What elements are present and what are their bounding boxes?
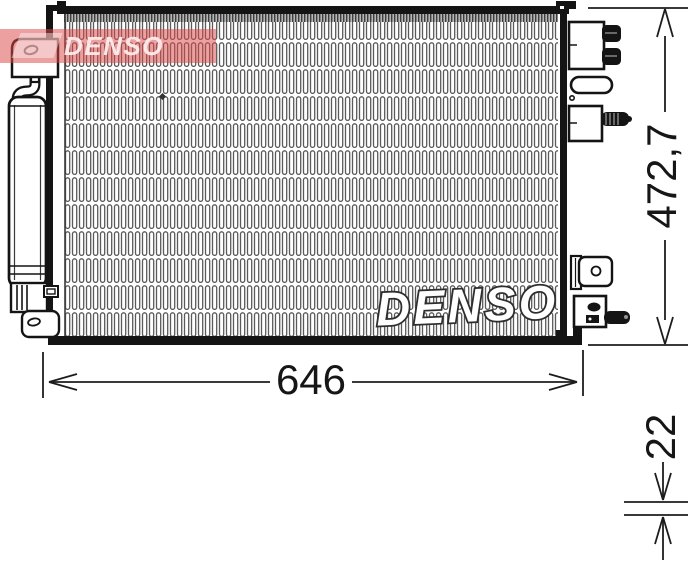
receiver-drier [9,97,46,287]
fitting-block-top-right [569,22,621,69]
mounting-bracket-bottom-left [22,311,59,337]
core-top-strip [64,13,558,22]
threaded-stud [601,112,629,126]
top-header-bar [57,1,576,14]
dimension-depth [624,462,688,560]
denso-logo-watermark: DENSO [0,29,216,63]
right-side-plate [560,13,567,338]
reference-dot [570,96,574,100]
height-dimension-label: 472,7 [638,123,685,228]
depth-dimension-label: 22 [637,414,684,461]
fitting-block-with-stud [569,106,632,141]
arrow-up [657,9,673,37]
arrow-down [657,317,673,344]
denso-logo-text: DENSO [64,31,164,62]
fitting-block-bottom-right [574,296,630,327]
tab-hole [592,267,601,276]
mounting-tab-right [571,256,612,289]
denso-core-watermark: DENSO [375,275,559,336]
product-image: 472,7 646 22 DENSO DENSO [0,0,690,564]
denso-logo-swoosh-icon [11,33,62,58]
condenser-technical-drawing: 472,7 646 22 DENSO [0,0,690,564]
width-dimension-label: 646 [276,356,346,403]
pipe-stub [571,77,612,93]
